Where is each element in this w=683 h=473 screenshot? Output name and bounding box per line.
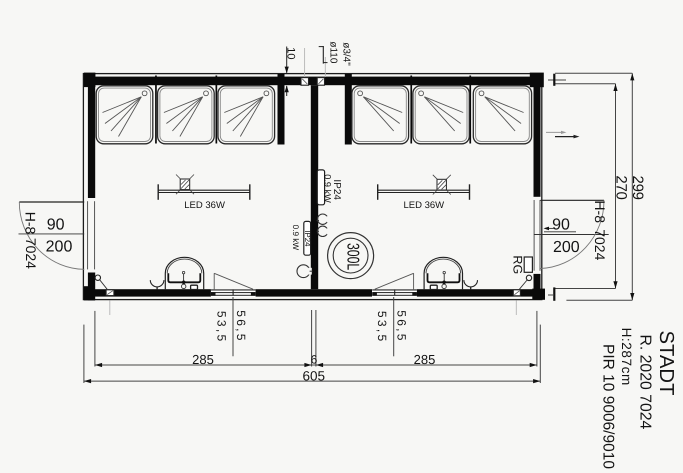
svg-text:270: 270 [613,175,630,199]
svg-text:H-8: H-8 [592,200,608,223]
svg-text:7024: 7024 [23,238,39,269]
svg-text:53,5: 53,5 [215,311,229,344]
svg-text:7024: 7024 [592,229,608,260]
svg-text:300L: 300L [343,243,362,270]
svg-text:90: 90 [47,216,65,233]
svg-text:LED 36W: LED 36W [403,200,444,211]
svg-text:200: 200 [46,239,73,256]
svg-text:53,5: 53,5 [375,311,389,344]
svg-text:285: 285 [192,352,214,367]
svg-text:H:287cm: H:287cm [619,328,634,386]
svg-text:ø110: ø110 [328,41,339,63]
svg-text:0.9 kW: 0.9 kW [323,174,333,203]
svg-text:PIR 10 9006/9010: PIR 10 9006/9010 [599,344,616,469]
svg-text:285: 285 [414,352,436,367]
svg-text:LED 36W: LED 36W [184,200,225,211]
svg-text:90: 90 [552,216,570,233]
svg-text:RG: RG [511,255,525,274]
svg-text:10: 10 [284,47,296,59]
svg-text:IP24: IP24 [303,230,312,247]
svg-text:R. 2020 7024: R. 2020 7024 [636,334,653,429]
svg-text:56,5: 56,5 [234,310,248,343]
svg-text:0.9 kW: 0.9 kW [291,225,300,251]
svg-text:299: 299 [629,176,646,200]
svg-text:STADT: STADT [655,331,677,396]
svg-text:56,5: 56,5 [395,310,409,343]
svg-text:6: 6 [311,353,318,367]
svg-text:ø3/4": ø3/4" [341,42,352,66]
svg-text:605: 605 [303,368,326,383]
svg-text:200: 200 [553,239,580,256]
svg-text:H-8: H-8 [23,212,39,235]
